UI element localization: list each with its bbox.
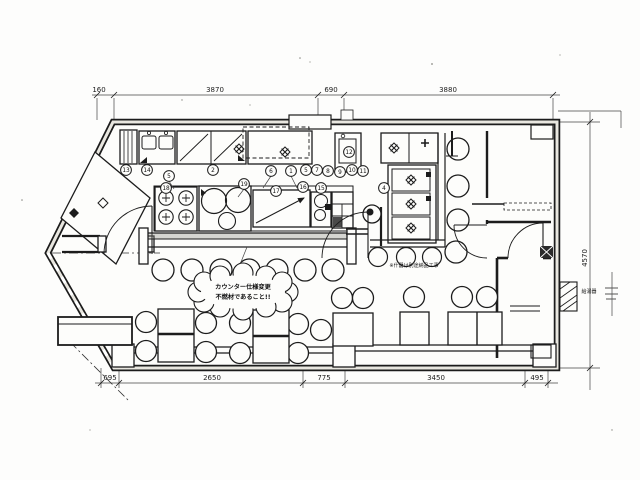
callout-2: 2 — [208, 165, 219, 176]
illegible-exterior-label — [605, 288, 618, 299]
cloud-note-line2: 不燃材であること!! — [215, 293, 270, 301]
water-heater: 給湯器 — [560, 282, 597, 311]
stool — [445, 241, 467, 263]
svg-text:1: 1 — [289, 169, 293, 175]
water-heater-label: 給湯器 — [581, 288, 596, 295]
wall-post — [333, 344, 355, 367]
callout-6: 6 — [266, 166, 277, 177]
callout-1: 1 — [286, 166, 297, 177]
chair — [452, 287, 473, 308]
prep-counter — [253, 190, 310, 227]
chair — [311, 320, 332, 341]
stool — [447, 175, 469, 197]
stool — [447, 138, 469, 160]
callout-10: 10 — [347, 165, 358, 176]
cloud-note-line1: カウンター仕様変更 — [215, 283, 271, 291]
svg-text:16: 16 — [299, 185, 307, 191]
callout-5: 5 — [164, 171, 175, 182]
corner-notch — [531, 125, 553, 139]
callout-7: 7 — [312, 165, 323, 176]
dim-top-1: 160 — [92, 86, 105, 94]
dim-right-1: 4570 — [581, 249, 589, 267]
svg-text:13: 13 — [122, 168, 130, 174]
callout-8: 8 — [323, 166, 334, 177]
callout-18: 18 — [161, 183, 172, 194]
chair — [477, 287, 498, 308]
callout-9: 9 — [335, 167, 346, 178]
shelf-unit — [120, 130, 137, 164]
svg-text:5: 5 — [167, 174, 171, 180]
svg-text:4: 4 — [382, 186, 386, 192]
dining-table — [158, 309, 194, 362]
svg-text:18: 18 — [162, 186, 170, 192]
svg-text:11: 11 — [359, 169, 367, 175]
callout-14: 14 — [142, 165, 153, 176]
svg-text:2: 2 — [211, 168, 215, 174]
dim-bottom-5: 495 — [530, 374, 543, 382]
dim-bottom-3: 775 — [317, 374, 330, 382]
stool — [369, 248, 388, 267]
cloud-annotation: カウンター仕様変更 不燃材であること!! — [188, 263, 298, 320]
floor-plan: 160 3870 690 3880 695 2650 775 3450 495 … — [0, 0, 640, 480]
work-counter — [248, 131, 312, 164]
dim-top-2: 3870 — [206, 86, 224, 94]
callout-12: 12 — [344, 147, 355, 158]
rice-cooker-table — [199, 186, 251, 231]
svg-text:15: 15 — [317, 186, 325, 192]
svg-text:9: 9 — [338, 170, 342, 176]
svg-text:19: 19 — [240, 182, 248, 188]
fixtures-note: ※什器は別途納品工事 — [389, 262, 438, 269]
callout-11: 11 — [358, 166, 369, 177]
callout-4: 4 — [379, 183, 390, 194]
svg-text:5: 5 — [304, 168, 308, 174]
dining-table — [333, 313, 373, 346]
shaft-box — [540, 246, 553, 258]
callout-5b: 5 — [301, 165, 312, 176]
chair — [404, 287, 425, 308]
gas-range — [155, 187, 197, 231]
chair — [353, 288, 374, 309]
svg-text:8: 8 — [326, 169, 330, 175]
svg-text:7: 7 — [315, 168, 319, 174]
svg-text:14: 14 — [143, 168, 151, 174]
svg-text:17: 17 — [272, 189, 280, 195]
dim-bottom-4: 3450 — [427, 374, 445, 382]
dim-top-4: 3880 — [439, 86, 457, 94]
chair — [136, 341, 157, 362]
dining-table — [400, 312, 429, 345]
callout-17: 17 — [271, 186, 282, 197]
chair — [332, 288, 353, 309]
callout-19: 19 — [239, 179, 250, 190]
wall-post — [533, 344, 556, 367]
planter-bench — [58, 317, 132, 345]
chair — [288, 314, 309, 335]
callout-16: 16 — [298, 182, 309, 193]
callout-15: 15 — [316, 183, 327, 194]
chair — [230, 343, 251, 364]
callout-13: 13 — [121, 165, 132, 176]
chair — [288, 343, 309, 364]
stool — [447, 209, 469, 231]
svg-text:12: 12 — [345, 150, 353, 156]
counter-end-post — [139, 228, 148, 264]
chair — [196, 313, 217, 334]
wall-post — [112, 344, 134, 367]
dim-top-3: 690 — [324, 86, 337, 94]
chair — [136, 312, 157, 333]
vent-box — [341, 110, 353, 120]
dining-table — [448, 312, 502, 345]
dim-bottom-1: 695 — [103, 374, 116, 382]
svg-text:6: 6 — [269, 169, 273, 175]
dim-bottom-2: 2650 — [203, 374, 221, 382]
svg-text:10: 10 — [348, 168, 356, 174]
chair — [196, 342, 217, 363]
